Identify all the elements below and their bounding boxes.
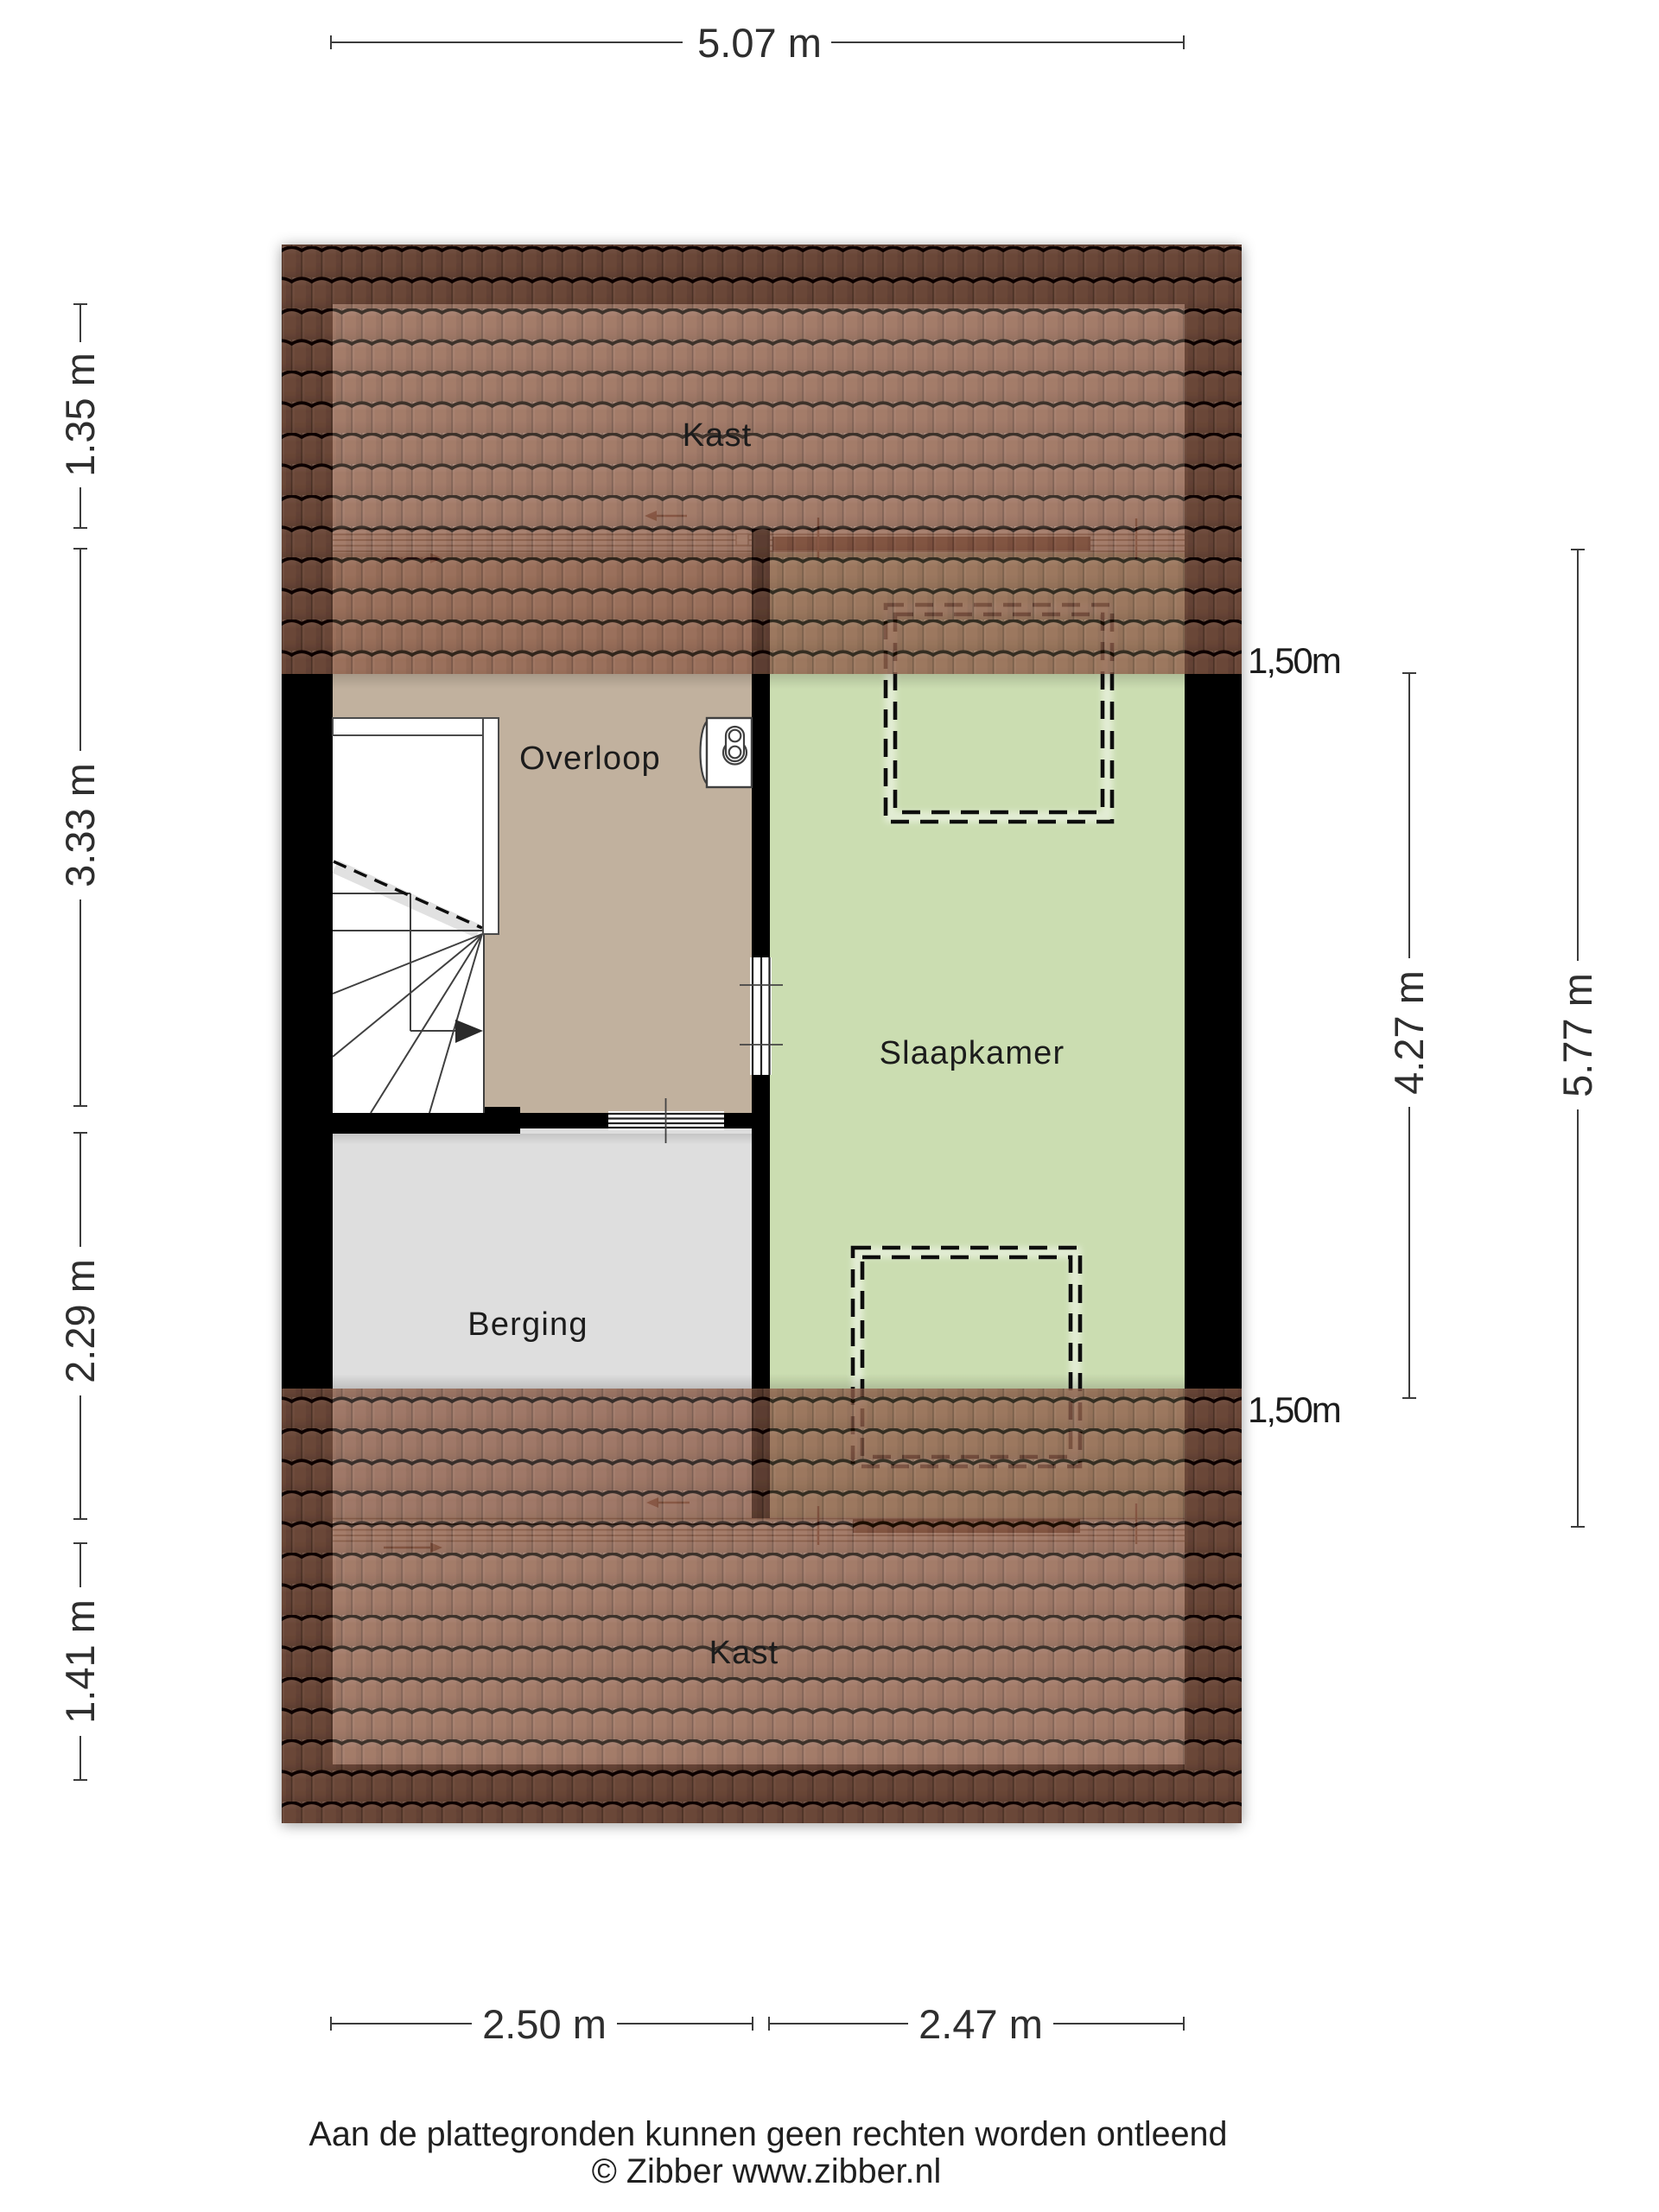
svg-text:1.41 m: 1.41 m bbox=[57, 1599, 103, 1724]
svg-text:1.35 m: 1.35 m bbox=[57, 353, 103, 477]
svg-text:2.29 m: 2.29 m bbox=[57, 1259, 103, 1383]
svg-text:1,50m: 1,50m bbox=[1248, 1389, 1340, 1430]
svg-text:Berging: Berging bbox=[467, 1306, 588, 1343]
svg-text:5.07 m: 5.07 m bbox=[697, 20, 822, 66]
svg-text:2.47 m: 2.47 m bbox=[918, 2001, 1043, 2047]
svg-text:Kast: Kast bbox=[709, 1635, 779, 1671]
svg-text:1,50m: 1,50m bbox=[1248, 640, 1340, 681]
svg-text:Aan de plattegronden kunnen ge: Aan de plattegronden kunnen geen rechten… bbox=[309, 2115, 1228, 2153]
svg-text:Kast: Kast bbox=[683, 417, 753, 454]
svg-text:Overloop: Overloop bbox=[519, 741, 661, 777]
svg-text:4.27 m: 4.27 m bbox=[1386, 970, 1432, 1095]
svg-text:5.77 m: 5.77 m bbox=[1554, 973, 1600, 1097]
svg-text:3.33 m: 3.33 m bbox=[57, 763, 103, 887]
svg-text:© Zibber www.zibber.nl: © Zibber www.zibber.nl bbox=[592, 2152, 942, 2190]
svg-text:2.50 m: 2.50 m bbox=[482, 2001, 607, 2047]
svg-text:Slaapkamer: Slaapkamer bbox=[880, 1035, 1065, 1071]
